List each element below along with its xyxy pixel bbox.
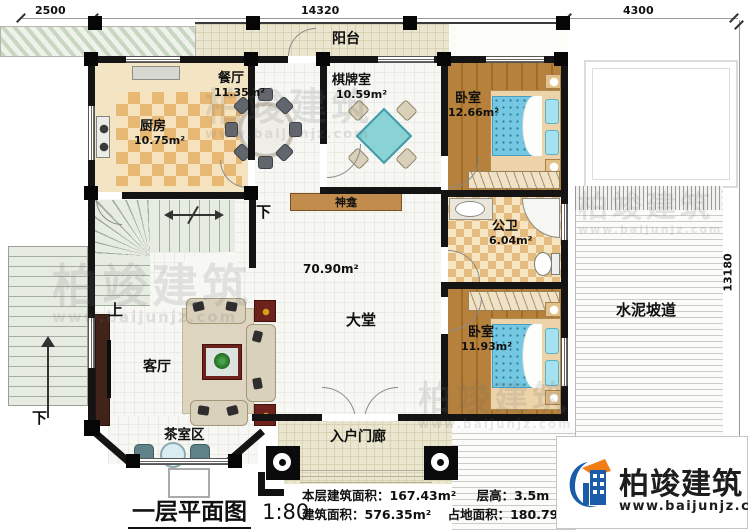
door-gap [322,414,398,421]
bedroom2-label: 卧室 [468,326,494,340]
floor-area-stat: 本层建筑面积：167.43m² [302,488,456,503]
wall [320,56,327,144]
kitchen-area: 10.75m² [134,135,185,147]
bed1-sheet [522,96,542,156]
corner-column [84,420,100,436]
porch-column [266,446,300,480]
floor-plan: 2500 14320 4300 13180 水泥坡道 下 上 下 [0,0,750,531]
tea-label: 茶室区 [164,428,205,443]
door-gap [441,156,448,190]
dining-area: 11.35m² [214,87,265,99]
column [437,52,451,66]
column [316,52,330,66]
column [244,186,258,200]
wall [249,192,256,268]
window [378,56,434,63]
sink [455,201,485,217]
ramp-step-band [575,186,722,210]
stairs-up-label: 上 [108,302,123,319]
column [554,52,568,66]
column [244,52,258,66]
window [88,318,95,368]
bed1-pillow [545,99,559,124]
brand-url: www.baijunjz.com [619,499,750,514]
brand-logo-icon [563,453,613,513]
dim-14320: 14320 [298,4,342,17]
window [561,338,568,386]
bay-post [126,454,140,468]
column [84,186,98,200]
door-gap [288,56,316,63]
stove [96,116,110,158]
bed1-pillow [545,130,559,155]
wall [441,289,448,297]
window [126,56,180,63]
title-block: 一层平面图 1:80 [128,492,309,526]
wall [441,197,448,247]
balcony-label: 阳台 [332,32,360,47]
bed2-pillow [545,328,559,354]
shrine-label: 神龛 [335,194,357,210]
hall-area: 70.90m² [303,263,359,276]
porch-step-line [300,476,432,477]
sofa-pillow [197,405,209,415]
balcony-column [88,16,102,30]
bedroom1-area: 12.66m² [448,107,499,119]
bay-post [228,454,242,468]
nightstand [545,390,561,405]
door-gap [441,297,448,334]
porch-step-line [300,470,432,471]
roof-eave-hatch [0,26,196,57]
window [486,56,544,63]
indoor-stairs-left-flight [94,256,150,306]
wall [248,56,255,160]
dim-13180: 13180 [722,250,735,294]
porch-column [424,446,458,480]
page-title: 一层平面图 [128,499,251,529]
dining-label: 餐厅 [218,72,244,86]
bed2-sheet [522,324,542,388]
side-table [254,300,276,322]
stats-block: 本层建筑面积：167.43m² 层高：3.5m 建筑面积：576.35m² 占地… [302,486,577,525]
shrine-cabinet: 神龛 [290,193,402,211]
stair-break-arrow-icon [164,210,173,220]
bedroom1-label: 卧室 [455,92,481,106]
balcony-column [556,16,570,30]
outdoor-stairs-down-label: 下 [32,410,47,427]
wardrobe [468,171,560,189]
tv [107,340,111,398]
dining-chair [225,122,238,137]
balcony-column [246,16,260,30]
ramp-label: 水泥坡道 [616,302,676,319]
toilet-tank [551,253,560,275]
bedroom2-area: 11.93m² [461,341,512,353]
bathroom-label: 公卫 [492,220,518,234]
right-dimension-line [739,20,740,462]
column [84,52,98,66]
top-right-deck [449,22,568,57]
living-label: 客厅 [143,360,171,375]
floor-height-stat: 层高：3.5m [477,488,550,503]
total-area-stat: 建筑面积：576.35m² [302,507,431,522]
wall [441,334,448,421]
stairs-down-label: 下 [256,204,271,221]
stair-arrowhead-icon [41,336,55,347]
sofa-pillow [252,377,263,389]
chess-label: 棋牌室 [332,74,371,88]
window [88,106,95,160]
door-gap [96,192,122,199]
bay-window [140,458,228,465]
hall-label: 大堂 [346,312,376,329]
kitchen-label: 厨房 [140,120,166,134]
top-dimension-line [20,18,738,19]
door-gap [320,144,327,187]
window [561,204,568,240]
porch-label: 入户门廊 [330,430,386,445]
stair-direction-arrow-icon [47,346,49,418]
door-gap [441,247,448,282]
sofa-pillow [225,301,237,312]
chess-area: 10.59m² [336,89,387,101]
toilet-bowl [534,252,552,276]
bathroom-area: 6.04m² [489,235,532,247]
brand-logo-box: 柏竣建筑 www.baijunjz.com [556,436,748,529]
wall [441,282,568,289]
dim-4300: 4300 [620,4,657,17]
dining-chair [289,122,302,137]
dim-2500: 2500 [32,4,69,17]
kitchen-counter [132,66,180,80]
wall [252,414,568,421]
nightstand [545,302,561,317]
porch-step-line [300,482,432,483]
indoor-stairs-top-flight [150,200,234,252]
wall [320,187,448,194]
dining-chair [258,156,273,169]
brand-name: 柏竣建筑 [619,459,743,503]
nightstand [545,74,561,89]
wall [441,56,448,156]
wall [441,190,568,197]
plant [214,353,230,369]
right-terrace-outline [584,60,738,188]
bed2-pillow [545,360,559,386]
stair-break-arrow-icon [215,210,224,220]
balcony-column [403,16,417,30]
